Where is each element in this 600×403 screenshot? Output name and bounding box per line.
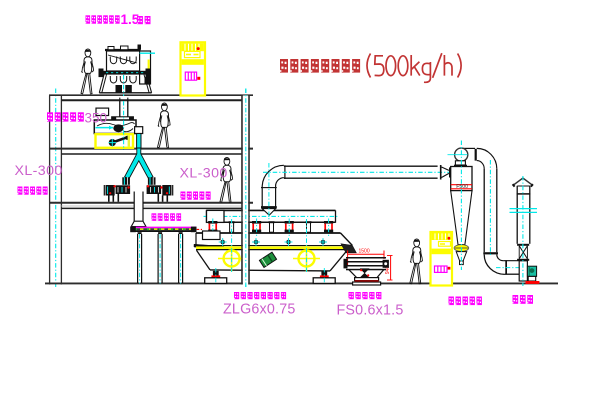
svg-text:FS0.6x1.5: FS0.6x1.5 <box>337 303 404 319</box>
svg-text:1500: 1500 <box>359 249 370 255</box>
svg-text:F500: F500 <box>456 184 468 190</box>
svg-text:XL-300: XL-300 <box>180 165 228 181</box>
svg-text:XL-300: XL-300 <box>15 163 63 179</box>
svg-text:1.5: 1.5 <box>121 12 140 27</box>
svg-text:ZLG6x0.75: ZLG6x0.75 <box>223 302 296 318</box>
svg-text:350: 350 <box>85 110 108 125</box>
